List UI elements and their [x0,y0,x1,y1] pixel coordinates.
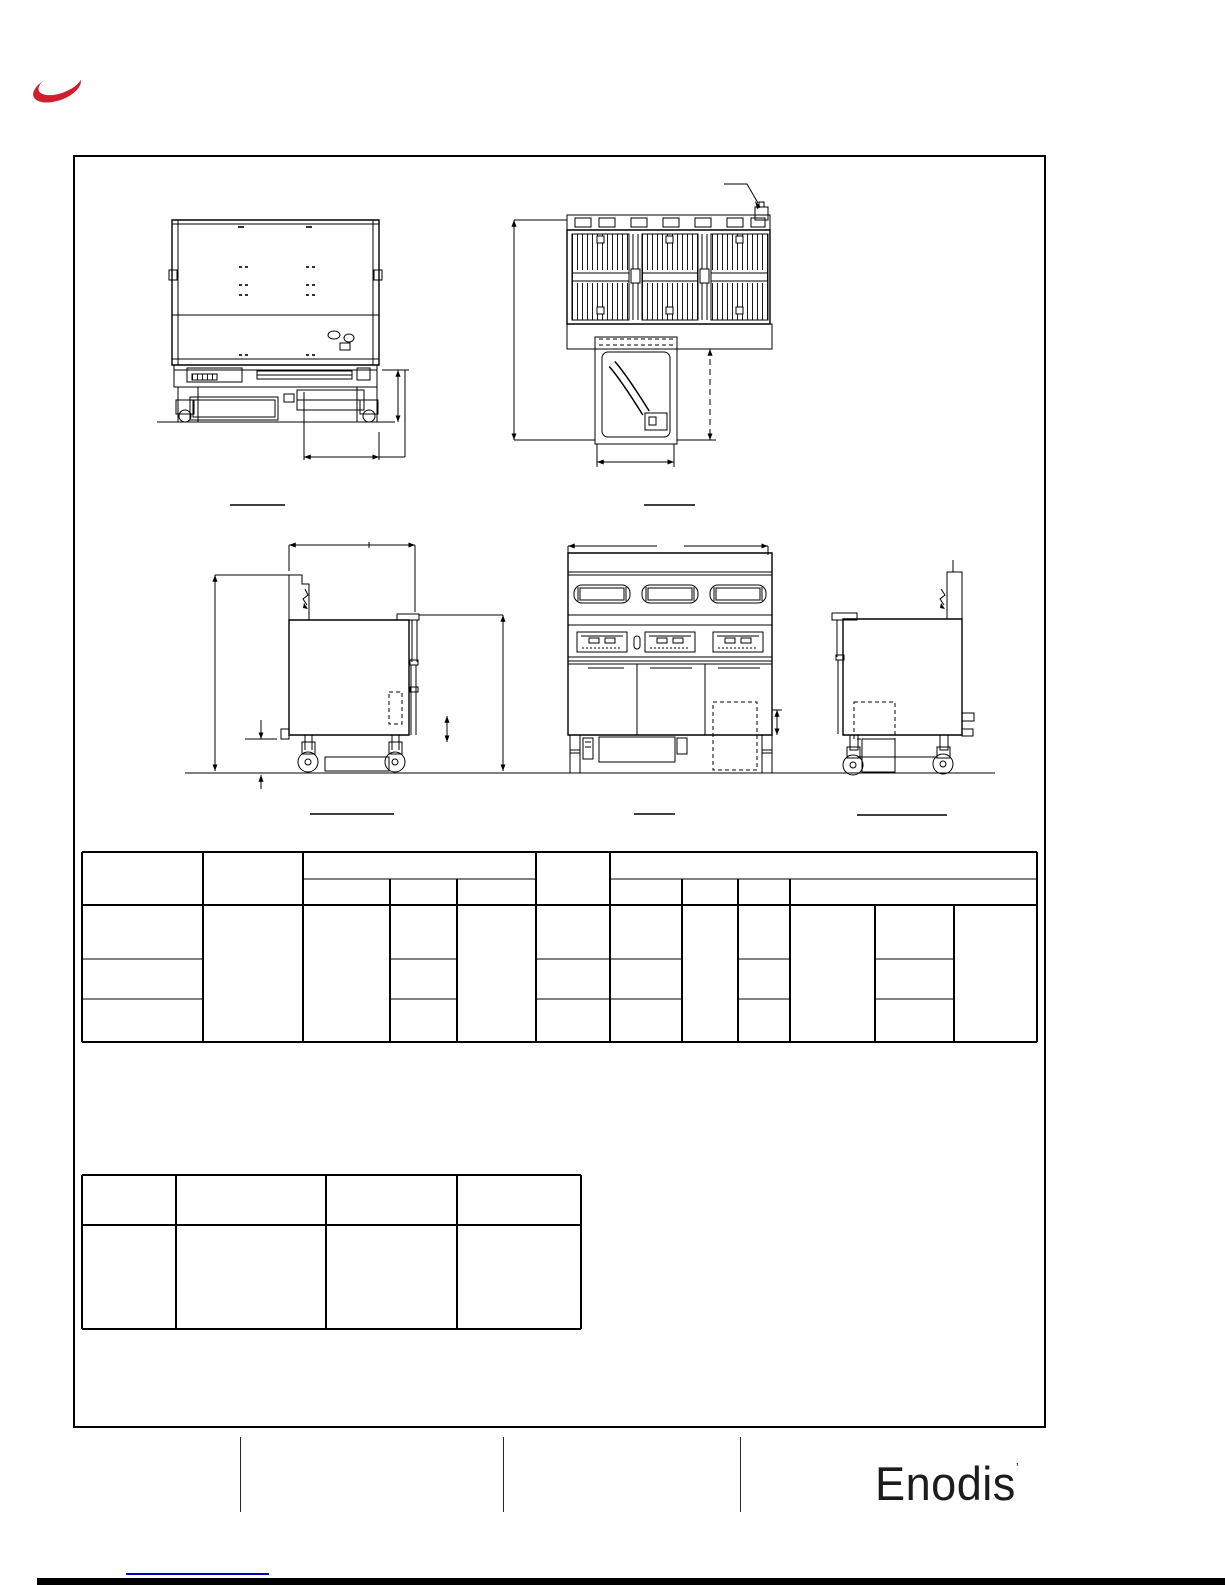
rear-view-bottom-dimension [304,392,405,460]
top-view-right-dimension [677,349,716,440]
trademark-tick: ’ [1016,1460,1019,1475]
brand-swoosh-icon [30,70,84,105]
spec-sheet-page: Enodis’ [0,0,1225,1585]
drawing-sheet-border [73,155,1046,1428]
basket-hangers [574,585,766,603]
footer-divider [240,1437,241,1512]
page-bottom-bar [37,1578,1225,1585]
footer-divider [503,1437,504,1512]
hidden-filter-outline [854,702,895,739]
footer-link-underline[interactable] [126,1573,269,1575]
right-side-view-drawing [832,560,974,815]
leader-line [724,184,758,203]
enodis-logo-text: Enodis [875,1457,1016,1510]
hidden-filter-outline [389,692,402,724]
rear-view-drawing [157,220,409,505]
top-view-bottom-dimension [597,444,674,467]
fry-pot-1 [572,234,629,320]
fry-pot-2 [642,234,698,320]
technical-drawing-canvas [75,157,1044,1426]
secondary-table-grid [82,1175,581,1329]
controller-panels [577,632,763,652]
fry-pot-3 [711,234,768,320]
front-view-drawing [568,546,782,814]
spec-table-grid [82,852,1037,1042]
top-view-drawing [514,184,772,505]
footer-divider [740,1437,741,1512]
enodis-logo: Enodis’ [875,1456,1038,1502]
probe [940,589,945,605]
filter-drawer [595,337,677,444]
hidden-filter-outline [713,702,757,770]
probe [303,589,308,605]
rear-view-right-dimension [382,370,409,457]
